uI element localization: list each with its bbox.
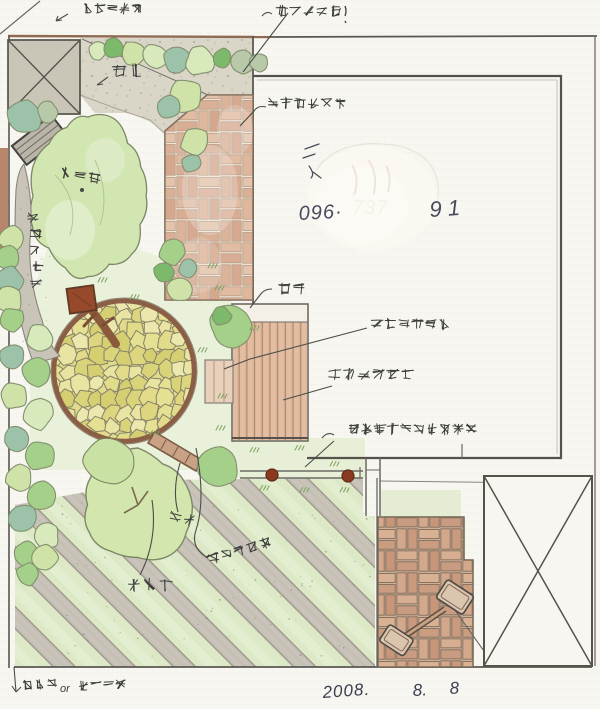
svg-text:91: 91 — [429, 195, 467, 222]
svg-text:8.: 8. — [412, 680, 427, 700]
svg-text:096·: 096· — [298, 201, 343, 225]
svg-text:2008.: 2008. — [321, 680, 371, 702]
svg-text:or: or — [60, 683, 71, 695]
svg-text:8: 8 — [449, 678, 460, 698]
svg-text:737: 737 — [352, 197, 388, 219]
